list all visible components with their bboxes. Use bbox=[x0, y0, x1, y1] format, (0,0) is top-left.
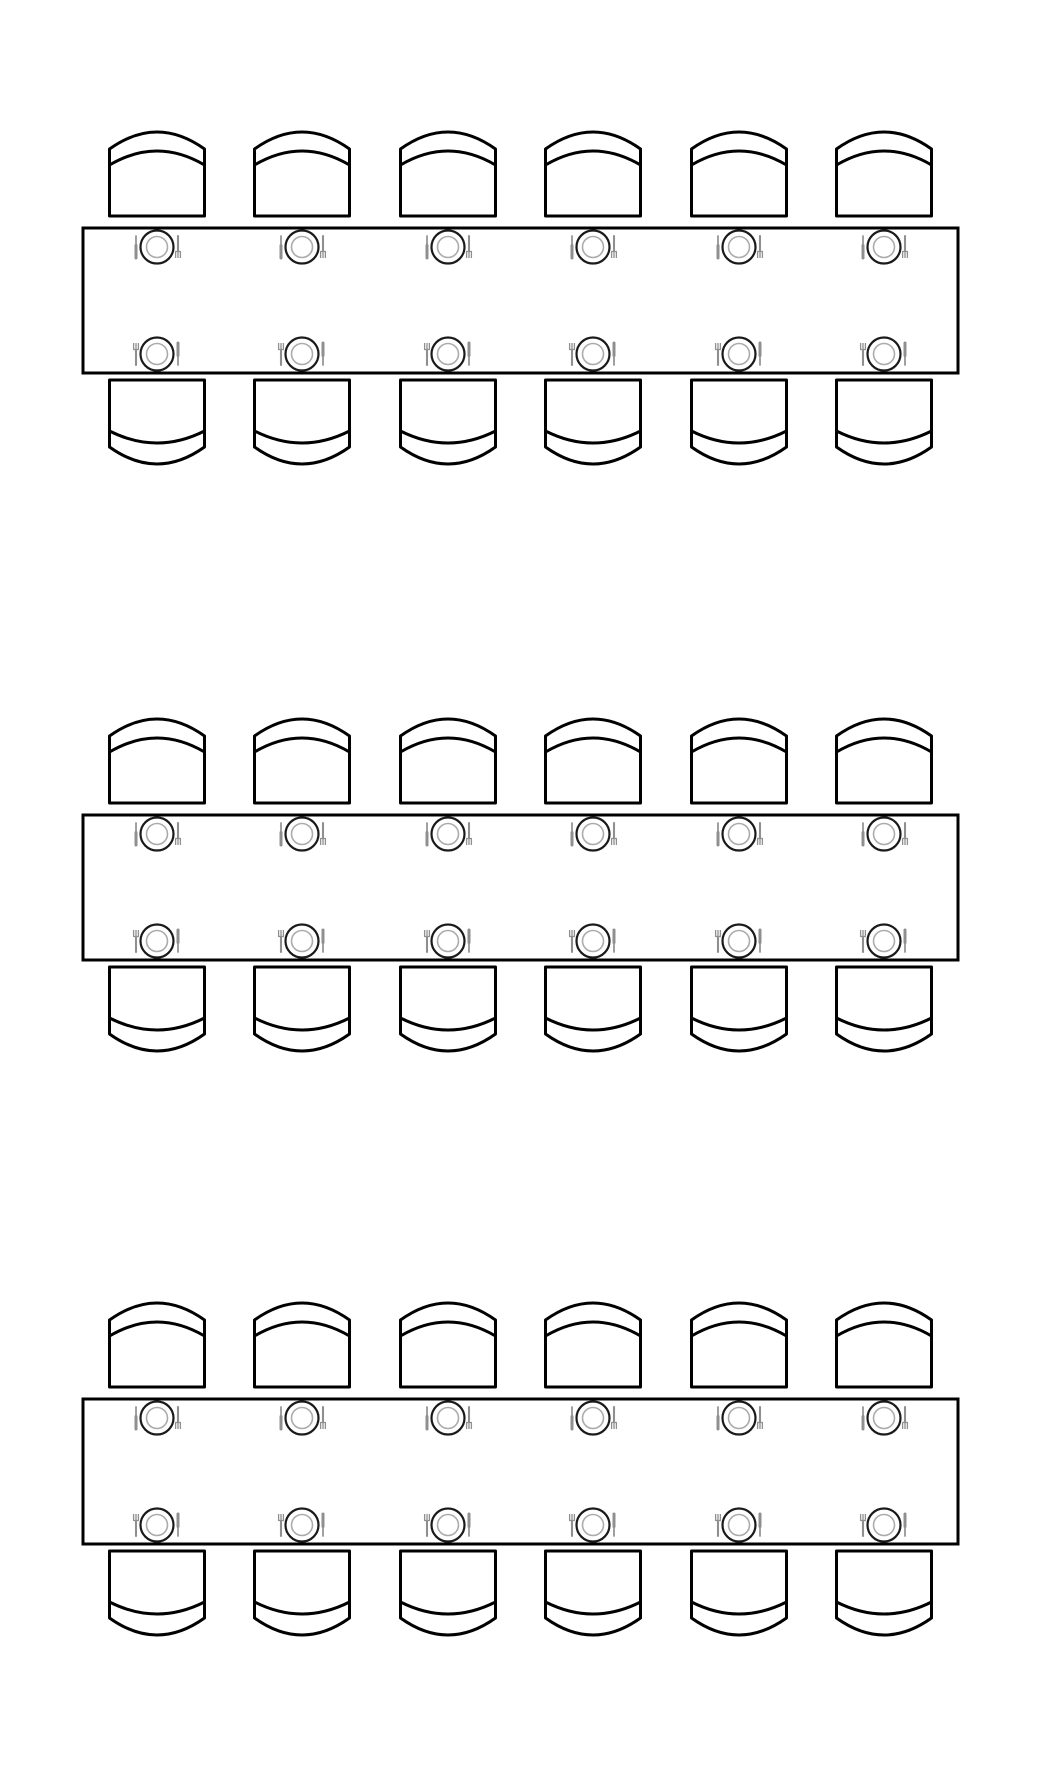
plate-icon bbox=[141, 338, 174, 371]
chair-outline bbox=[546, 132, 641, 216]
chair-outline bbox=[110, 1303, 205, 1387]
plate-icon bbox=[141, 925, 174, 958]
chair-outline bbox=[255, 967, 350, 1051]
chair-outline bbox=[692, 719, 787, 803]
plate-icon bbox=[868, 1402, 901, 1435]
table-1-chair-bottom-5 bbox=[692, 380, 787, 464]
chair-outline bbox=[546, 719, 641, 803]
table-3-chair-bottom-2 bbox=[255, 1551, 350, 1635]
chair-outline bbox=[546, 967, 641, 1051]
chair-outline bbox=[546, 1551, 641, 1635]
chair-outline bbox=[692, 1303, 787, 1387]
chair-outline bbox=[837, 380, 932, 464]
chair-outline bbox=[692, 967, 787, 1051]
chair-outline bbox=[546, 380, 641, 464]
table-1-chair-bottom-1 bbox=[110, 380, 205, 464]
plate-icon bbox=[286, 1509, 319, 1542]
chair-outline bbox=[255, 1303, 350, 1387]
chair-outline bbox=[692, 380, 787, 464]
plate-icon bbox=[868, 925, 901, 958]
plate-icon bbox=[868, 818, 901, 851]
chair-outline bbox=[255, 719, 350, 803]
table-2-chair-top-6 bbox=[837, 719, 932, 803]
table-3-chair-bottom-3 bbox=[401, 1551, 496, 1635]
table-3-group bbox=[83, 1303, 958, 1635]
plate-icon bbox=[577, 1402, 610, 1435]
table-2-chair-bottom-1 bbox=[110, 967, 205, 1051]
chair-outline bbox=[110, 1551, 205, 1635]
table-1-chair-bottom-4 bbox=[546, 380, 641, 464]
table-2-chair-bottom-5 bbox=[692, 967, 787, 1051]
table-2-chair-bottom-6 bbox=[837, 967, 932, 1051]
plate-icon bbox=[723, 1402, 756, 1435]
plate-icon bbox=[432, 818, 465, 851]
plate-icon bbox=[723, 925, 756, 958]
plate-icon bbox=[868, 1509, 901, 1542]
table-3-chair-top-3 bbox=[401, 1303, 496, 1387]
table-2-chair-bottom-2 bbox=[255, 967, 350, 1051]
plate-icon bbox=[432, 925, 465, 958]
seating-plan-svg bbox=[0, 0, 1040, 1773]
table-3-chair-bottom-1 bbox=[110, 1551, 205, 1635]
chair-outline bbox=[110, 719, 205, 803]
plate-icon bbox=[286, 1402, 319, 1435]
plate-icon bbox=[577, 231, 610, 264]
chair-outline bbox=[401, 132, 496, 216]
chair-outline bbox=[692, 1551, 787, 1635]
chair-outline bbox=[401, 380, 496, 464]
table-1-chair-top-5 bbox=[692, 132, 787, 216]
table-1-chair-top-4 bbox=[546, 132, 641, 216]
chair-outline bbox=[837, 719, 932, 803]
chair-outline bbox=[837, 1303, 932, 1387]
chair-outline bbox=[546, 1303, 641, 1387]
table-1-chair-top-1 bbox=[110, 132, 205, 216]
tables-layer bbox=[83, 132, 958, 1635]
plate-icon bbox=[141, 1509, 174, 1542]
chair-outline bbox=[255, 380, 350, 464]
table-3-chair-bottom-6 bbox=[837, 1551, 932, 1635]
plate-icon bbox=[577, 1509, 610, 1542]
plate-icon bbox=[286, 231, 319, 264]
seating-plan-canvas bbox=[0, 0, 1040, 1773]
table-3-chair-top-4 bbox=[546, 1303, 641, 1387]
table-3-chair-top-1 bbox=[110, 1303, 205, 1387]
plate-icon bbox=[141, 1402, 174, 1435]
chair-outline bbox=[401, 1303, 496, 1387]
table-3-chair-bottom-4 bbox=[546, 1551, 641, 1635]
chair-outline bbox=[837, 132, 932, 216]
table-1 bbox=[83, 228, 958, 373]
table-2-chair-top-3 bbox=[401, 719, 496, 803]
plate-icon bbox=[141, 231, 174, 264]
table-1-chair-top-2 bbox=[255, 132, 350, 216]
plate-icon bbox=[432, 231, 465, 264]
chair-outline bbox=[255, 1551, 350, 1635]
table-1-chair-top-6 bbox=[837, 132, 932, 216]
table-1-chair-top-3 bbox=[401, 132, 496, 216]
table-2-chair-top-1 bbox=[110, 719, 205, 803]
table-2 bbox=[83, 815, 958, 960]
plate-icon bbox=[141, 818, 174, 851]
chair-outline bbox=[401, 719, 496, 803]
plate-icon bbox=[723, 1509, 756, 1542]
chair-outline bbox=[401, 1551, 496, 1635]
table-2-chair-top-5 bbox=[692, 719, 787, 803]
chair-outline bbox=[110, 380, 205, 464]
table-2-chair-bottom-4 bbox=[546, 967, 641, 1051]
table-2-chair-top-2 bbox=[255, 719, 350, 803]
chair-outline bbox=[837, 967, 932, 1051]
table-3-chair-bottom-5 bbox=[692, 1551, 787, 1635]
plate-icon bbox=[286, 338, 319, 371]
table-1-chair-bottom-6 bbox=[837, 380, 932, 464]
chair-outline bbox=[837, 1551, 932, 1635]
plate-icon bbox=[577, 925, 610, 958]
chair-outline bbox=[110, 132, 205, 216]
plate-icon bbox=[286, 925, 319, 958]
plate-icon bbox=[723, 818, 756, 851]
plate-icon bbox=[432, 1509, 465, 1542]
table-2-group bbox=[83, 719, 958, 1051]
plate-icon bbox=[868, 338, 901, 371]
plate-icon bbox=[577, 338, 610, 371]
chair-outline bbox=[255, 132, 350, 216]
table-3-chair-top-5 bbox=[692, 1303, 787, 1387]
plate-icon bbox=[286, 818, 319, 851]
chair-outline bbox=[110, 967, 205, 1051]
table-2-chair-bottom-3 bbox=[401, 967, 496, 1051]
plate-icon bbox=[432, 1402, 465, 1435]
plate-icon bbox=[723, 231, 756, 264]
table-1-chair-bottom-2 bbox=[255, 380, 350, 464]
plate-icon bbox=[577, 818, 610, 851]
table-1-group bbox=[83, 132, 958, 464]
table-2-chair-top-4 bbox=[546, 719, 641, 803]
table-3 bbox=[83, 1399, 958, 1544]
plate-icon bbox=[723, 338, 756, 371]
chair-outline bbox=[401, 967, 496, 1051]
table-3-chair-top-2 bbox=[255, 1303, 350, 1387]
plate-icon bbox=[868, 231, 901, 264]
chair-outline bbox=[692, 132, 787, 216]
table-3-chair-top-6 bbox=[837, 1303, 932, 1387]
table-1-chair-bottom-3 bbox=[401, 380, 496, 464]
plate-icon bbox=[432, 338, 465, 371]
